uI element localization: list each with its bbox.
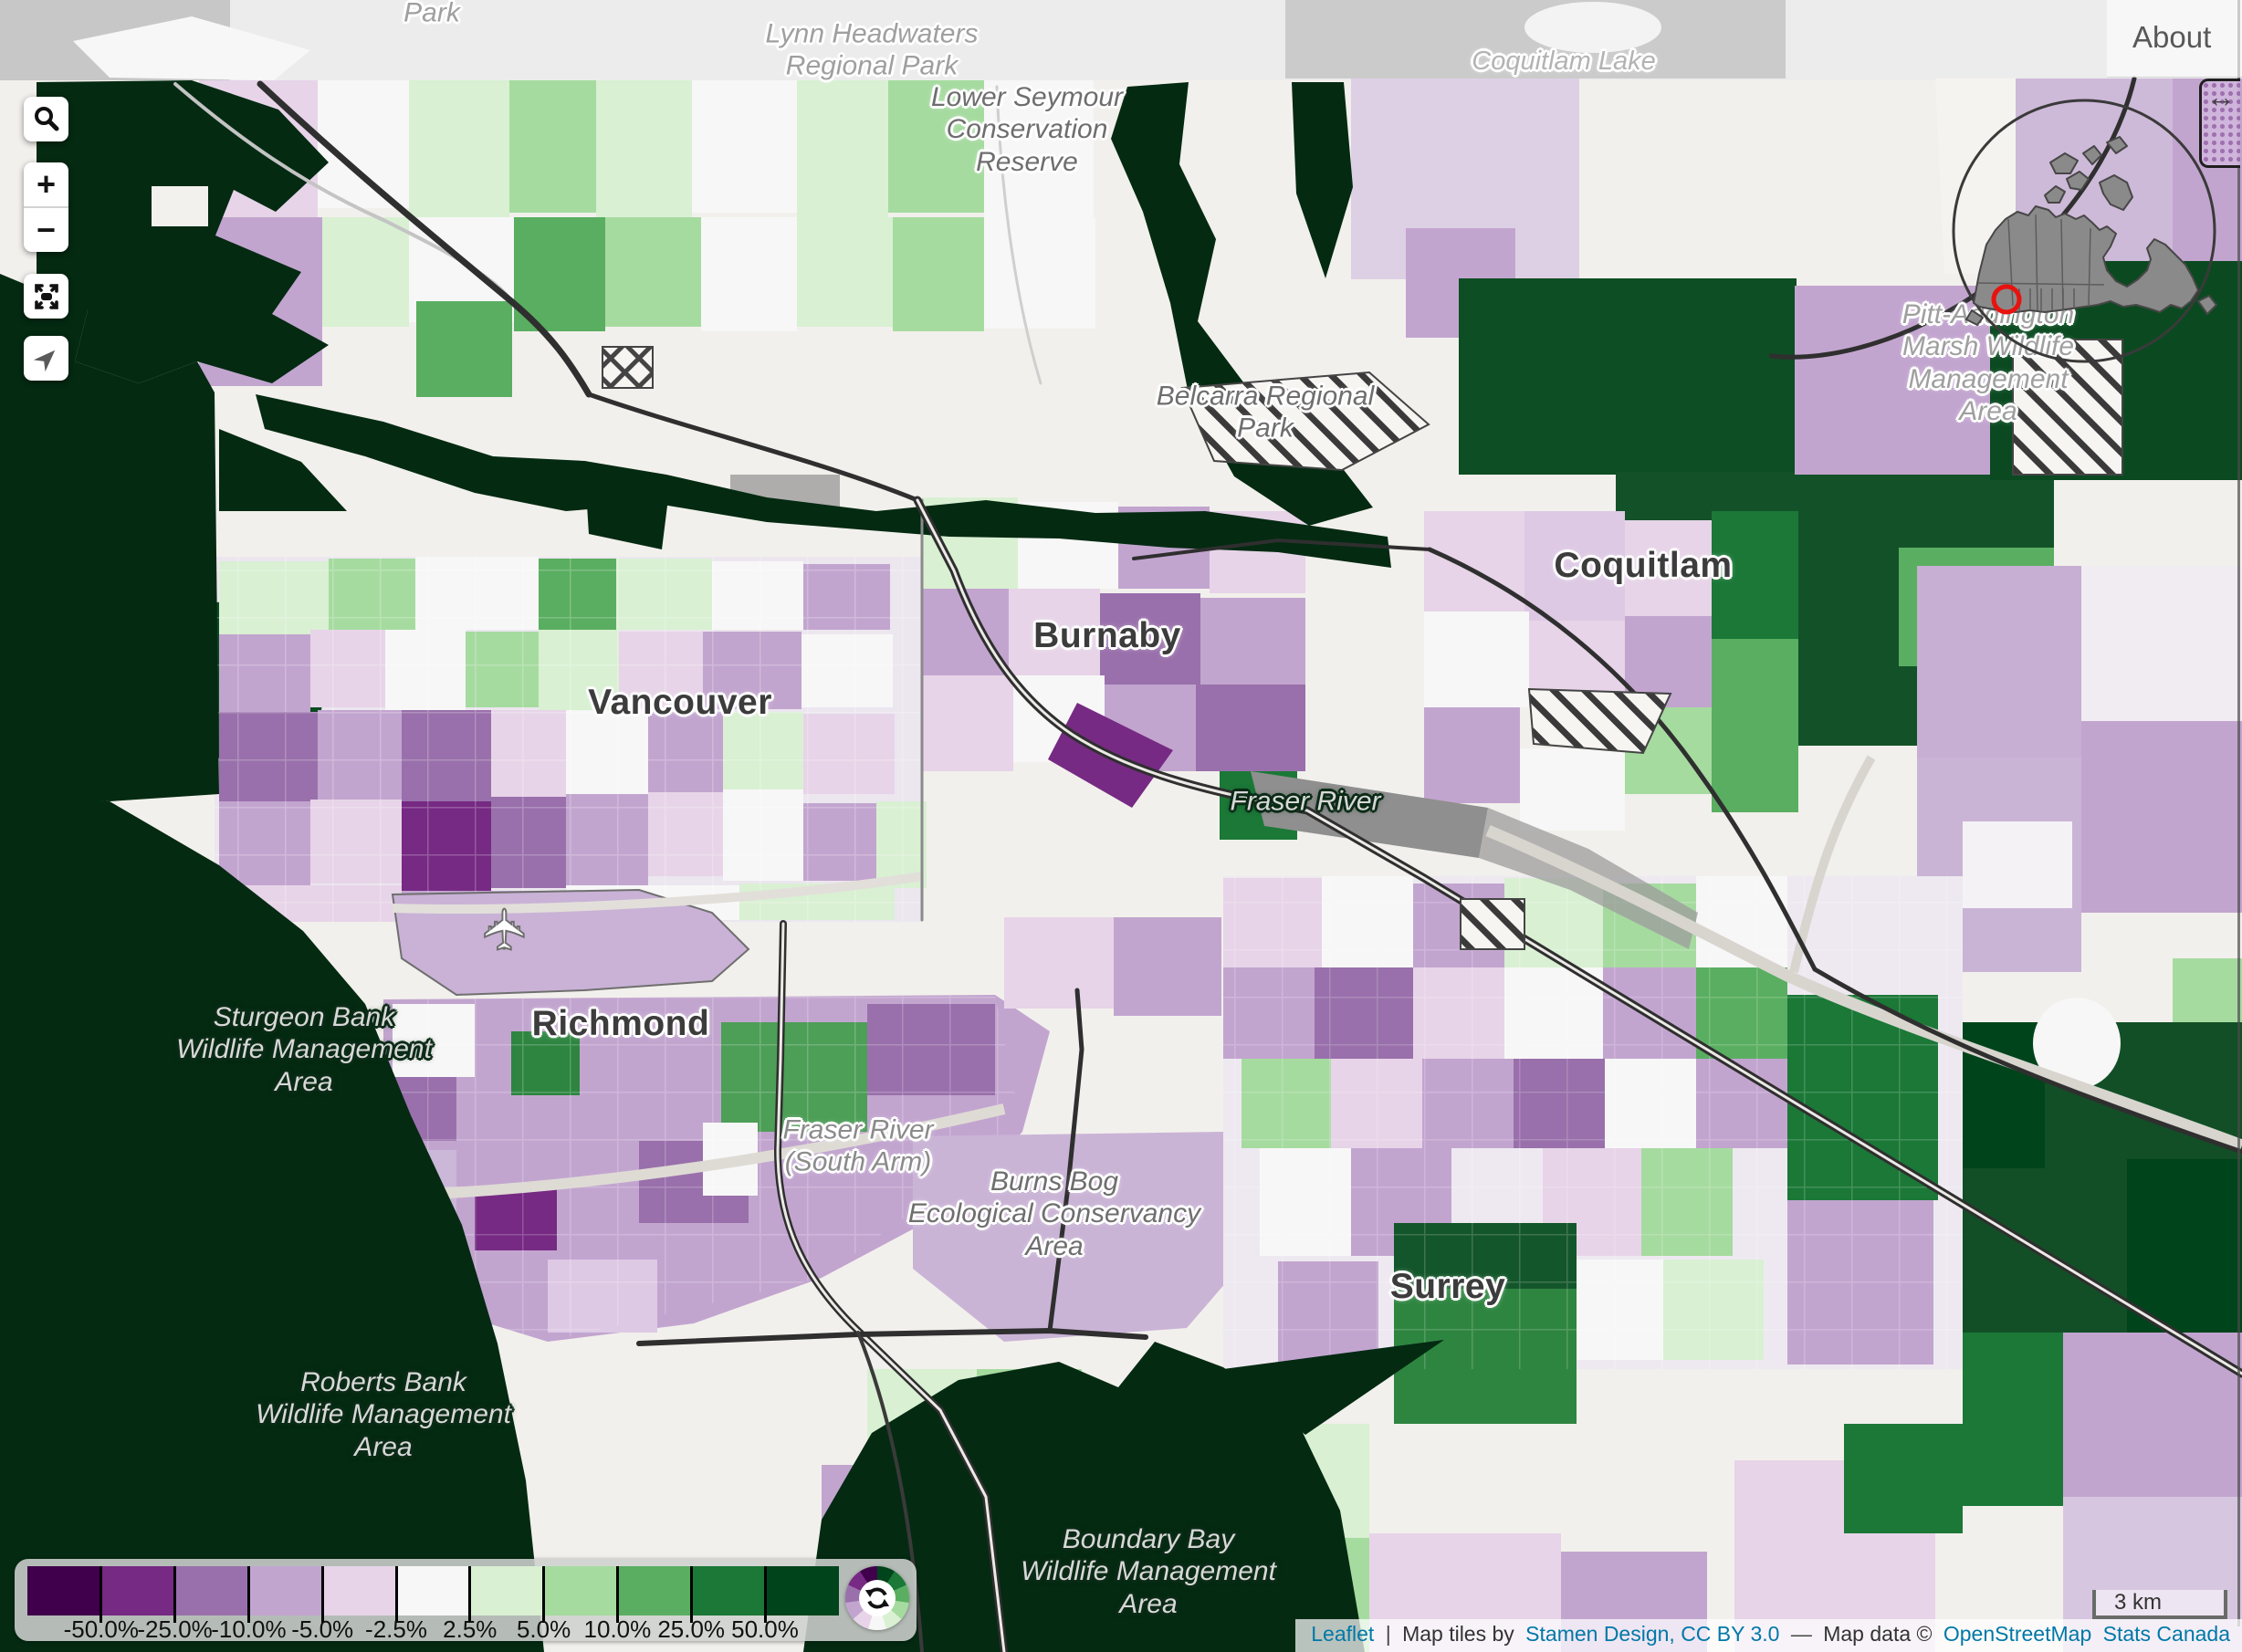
scale-bar: 3 km	[2092, 1590, 2227, 1619]
legend-swatch	[617, 1566, 691, 1615]
refresh-icon	[859, 1580, 896, 1616]
hatched-areas	[602, 340, 2122, 949]
airplane-icon: ✈	[475, 905, 538, 953]
palette-cycle-button[interactable]	[845, 1566, 909, 1630]
roads	[175, 78, 2242, 1652]
sidebar-resize-handle[interactable]: ↔	[2199, 78, 2240, 168]
legend: -50.0%-25.0%-10.0%-5.0%-2.5%2.5%5.0%10.0…	[15, 1559, 917, 1641]
legend-swatch	[175, 1566, 249, 1615]
logo-row1: 山軟	[4, 4, 33, 60]
label-pitt-addington: Pitt-AddingtonMarsh WildlifeManagementAr…	[1902, 298, 2074, 428]
legend-swatch	[248, 1566, 322, 1615]
legend-swatch	[396, 1566, 470, 1615]
label-coquitlam-lake: Coquitlam Lake	[1472, 46, 1656, 77]
canada-division-lines	[1976, 214, 2104, 310]
about-link[interactable]: About	[2132, 20, 2211, 55]
attribution-divider: |	[1386, 1622, 1391, 1646]
label-coquitlam: Coquitlam	[1554, 545, 1732, 587]
about-panel: About	[2107, 0, 2242, 78]
legend-tick-label: -10.0%	[211, 1615, 286, 1644]
legend-swatch	[101, 1566, 175, 1615]
legend-tick-label: 2.5%	[443, 1615, 497, 1644]
legend-swatch	[691, 1566, 765, 1615]
label-lynn-headwaters: Lynn HeadwatersRegional Park	[766, 18, 979, 83]
locate-button[interactable]	[24, 336, 68, 381]
zoom-control: + −	[24, 162, 68, 252]
logo-row2: 數體	[33, 4, 62, 60]
legend-tick	[100, 1566, 102, 1623]
basemap-background	[0, 0, 2242, 1652]
stamen-link[interactable]: Stamen Design, CC BY 3.0	[1525, 1622, 1779, 1646]
legend-tick	[764, 1566, 767, 1623]
choropleth-map[interactable]: ✈	[0, 0, 2242, 1652]
search-icon	[31, 104, 62, 135]
label-vancouver: Vancouver	[588, 682, 772, 724]
data-prefix: Map data ©	[1823, 1622, 1932, 1646]
openstreetmap-link[interactable]: OpenStreetMap	[1943, 1622, 2091, 1646]
label-burns-bog: Burns BogEcological ConservancyArea	[908, 1166, 1200, 1262]
label-sturgeon-bank: Sturgeon BankWildlife ManagementArea	[176, 1001, 432, 1098]
canada-silhouette	[1966, 137, 2216, 325]
choropleth-tracts	[199, 78, 2242, 1652]
no-data-areas	[730, 475, 1698, 949]
label-fraser-river: Fraser River	[1230, 785, 1380, 817]
legend-tick-label: 25.0%	[657, 1615, 725, 1644]
legend-swatch-row	[27, 1566, 839, 1615]
legend-tick	[395, 1566, 398, 1623]
sidebar-edge	[2237, 0, 2240, 1626]
legend-tick	[468, 1566, 471, 1623]
legend-swatch	[470, 1566, 544, 1615]
label-lower-seymour: Lower SeymourConservationReserve	[931, 81, 1123, 178]
fullscreen-icon	[30, 280, 63, 313]
legend-swatch	[322, 1566, 396, 1615]
fullscreen-button[interactable]	[24, 274, 68, 319]
legend-tick-label: 10.0%	[584, 1615, 652, 1644]
legend-tick	[690, 1566, 693, 1623]
mountainmath-logo[interactable]: 山軟 數體	[0, 0, 66, 64]
tiles-prefix: Map tiles by	[1402, 1622, 1514, 1646]
legend-tick	[616, 1566, 619, 1623]
legend-tick	[173, 1566, 176, 1623]
search-button[interactable]	[24, 97, 68, 141]
legend-swatch	[765, 1566, 839, 1615]
legend-tick	[321, 1566, 324, 1623]
label-surrey: Surrey	[1390, 1266, 1506, 1308]
rivers	[393, 758, 2242, 1196]
legend-swatch	[27, 1566, 101, 1615]
horizontal-resize-icon: ↔	[2202, 81, 2240, 112]
legend-tick-label: -50.0%	[64, 1615, 139, 1644]
legend-swatch	[544, 1566, 618, 1615]
locate-arrow-icon	[30, 342, 63, 375]
legend-tick-label: -2.5%	[365, 1615, 427, 1644]
label-burnaby: Burnaby	[1033, 615, 1181, 657]
attribution-dash: —	[1791, 1622, 1812, 1646]
zoom-in-button[interactable]: +	[24, 162, 68, 206]
legend-tick-label: -5.0%	[291, 1615, 353, 1644]
leaflet-link[interactable]: Leaflet	[1311, 1622, 1374, 1646]
inset-location-marker	[1994, 287, 2019, 312]
zoom-out-button[interactable]: −	[24, 206, 68, 252]
label-belcarra: Belcarra RegionalPark	[1157, 381, 1374, 445]
legend-tick	[542, 1566, 545, 1623]
statcan-link[interactable]: Stats Canada	[2103, 1622, 2230, 1646]
water-areas	[0, 80, 1444, 1652]
legend-tick-label: 5.0%	[517, 1615, 571, 1644]
legend-tick-label: 50.0%	[731, 1615, 799, 1644]
legend-tick-label: -25.0%	[137, 1615, 212, 1644]
label-park: Park	[403, 0, 460, 29]
inset-circle	[1954, 100, 2215, 361]
label-fraser-south-arm: Fraser River(South Arm)	[782, 1114, 933, 1179]
label-boundary-bay: Boundary BayWildlife ManagementArea	[1021, 1523, 1276, 1620]
legend-tick	[247, 1566, 250, 1623]
label-richmond: Richmond	[532, 1003, 710, 1045]
attribution-bar: Leaflet | Map tiles by Stamen Design, CC…	[1295, 1619, 2242, 1652]
label-roberts-bank: Roberts BankWildlife ManagementArea	[256, 1366, 511, 1463]
canada-inset-map	[0, 0, 2242, 1652]
